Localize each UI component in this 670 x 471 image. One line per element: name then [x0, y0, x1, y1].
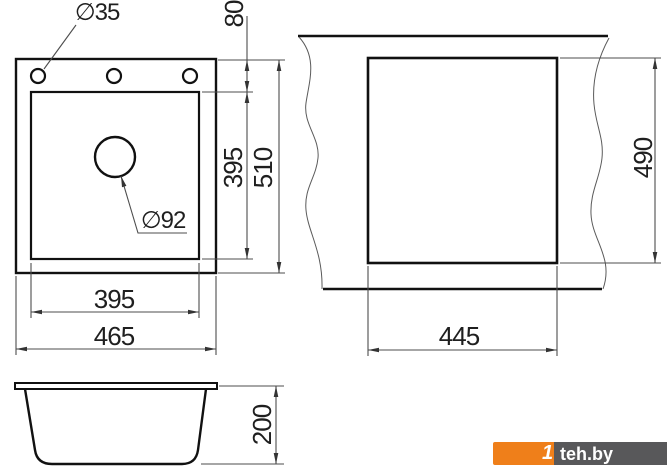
sink-rim-profile	[15, 383, 217, 389]
logo-panel: teh.by	[554, 442, 667, 465]
tap-hole-right	[183, 69, 197, 83]
leader-hole-diameter	[44, 25, 76, 69]
dim-label-hole-diameter: ∅35	[75, 1, 120, 25]
dim-label-bowl-width: 395	[94, 286, 134, 312]
dim-arrow	[245, 92, 250, 103]
break-line-right	[591, 38, 609, 289]
dim-label-rim-offset: 80	[221, 1, 247, 28]
logo-text: teh.by	[560, 445, 613, 463]
drawing-geometry	[0, 0, 670, 471]
drain-hole	[95, 137, 135, 177]
dim-label-overall-width: 465	[94, 323, 134, 349]
dim-arrow	[274, 386, 279, 397]
dim-arrow	[546, 348, 557, 353]
dim-arrow	[368, 348, 379, 353]
leader-arrowhead	[121, 176, 126, 187]
break-line-left	[299, 37, 322, 289]
cutout-outline	[368, 58, 557, 263]
dim-label-cutout-width: 445	[439, 323, 479, 349]
sink-bowl-profile	[25, 389, 206, 464]
dim-arrow	[245, 248, 250, 259]
dim-label-drain-diameter: ∅92	[141, 209, 186, 233]
dim-arrow	[245, 81, 250, 92]
dim-arrow	[277, 60, 282, 71]
tap-hole-left	[31, 69, 45, 83]
dim-arrow	[188, 310, 199, 315]
dim-arrow	[16, 347, 27, 352]
dim-label-overall-length: 510	[250, 148, 276, 188]
dim-arrow	[245, 60, 250, 71]
watermark-logo: 1 teh.by	[493, 442, 667, 465]
dim-arrow	[277, 262, 282, 273]
dim-arrow	[205, 347, 216, 352]
dim-arrow	[31, 310, 42, 315]
dim-label-bowl-depth: 200	[249, 405, 275, 445]
dim-arrow	[653, 252, 658, 263]
dim-arrow	[274, 453, 279, 464]
dim-label-bowl-length: 395	[220, 148, 246, 188]
dim-arrow	[653, 58, 658, 69]
logo-mark: 1	[542, 443, 553, 463]
dim-label-cutout-length: 490	[630, 138, 656, 178]
sink-dimension-drawing: ∅35 ∅92 80 395 510 395 465 490 445 200 1…	[0, 0, 670, 471]
tap-hole-center	[107, 69, 121, 83]
